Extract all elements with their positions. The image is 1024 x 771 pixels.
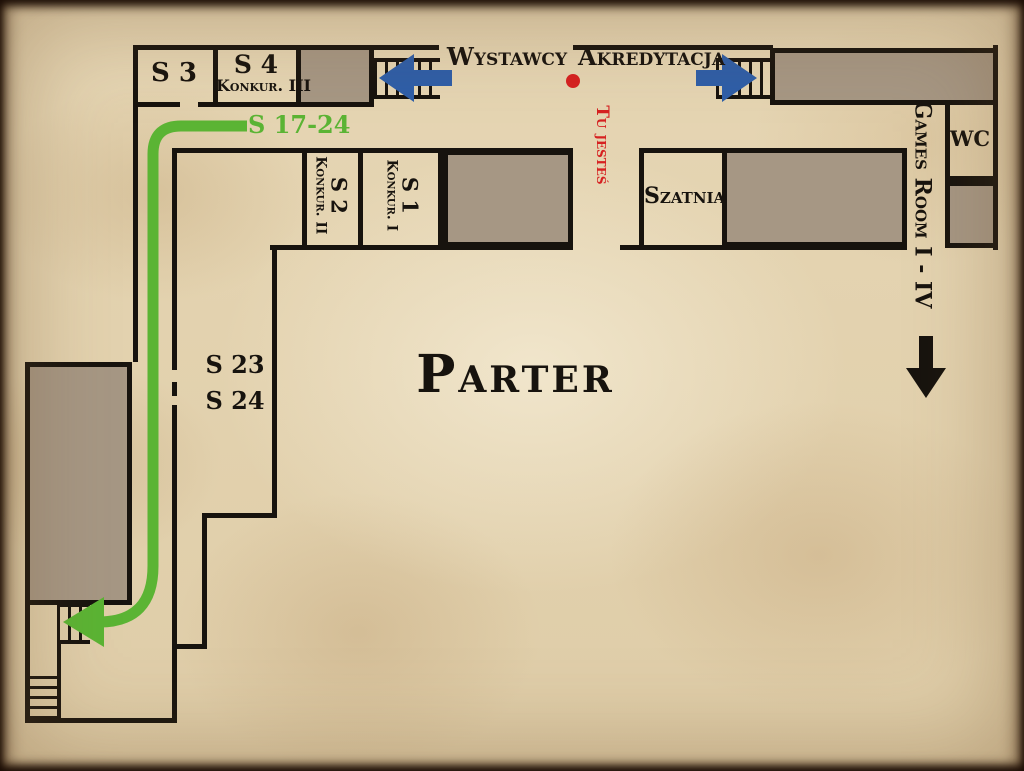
wall (133, 45, 439, 50)
shaded-room (945, 181, 998, 248)
stairs (57, 603, 90, 644)
route-label-s17-24: S 17-24 (248, 112, 368, 137)
room-label-s2-sub: Konkur. II (313, 145, 328, 245)
wall (639, 148, 907, 153)
wall (313, 102, 374, 107)
shaded-room (25, 362, 132, 605)
room-label-s1: S 1 Konkur. I (384, 145, 421, 245)
wall (172, 148, 573, 153)
stairs (374, 58, 440, 99)
wall (202, 513, 207, 649)
wall (172, 644, 206, 649)
shaded-room (770, 48, 998, 105)
you-are-here-label: Tu jesteś (592, 85, 610, 205)
wall (272, 250, 277, 517)
room-label-szatnia: Szatnia (644, 185, 722, 208)
floor-title: Parter (408, 348, 623, 403)
room-label-s23: S 23 (194, 352, 276, 377)
shaded-room (443, 150, 573, 247)
room-label-wc: WC (945, 128, 995, 150)
wall (270, 245, 573, 250)
you-are-here-dot (566, 74, 580, 88)
wall (945, 176, 998, 181)
floor-plan-canvas: S 3 S 4 Konkur. III Wystawcy Akredytacja… (0, 0, 1024, 771)
wall (133, 102, 138, 362)
annotation-akredytacja: Akredytacja (578, 44, 723, 69)
room-label-s4-sub: Konkur. III (216, 78, 296, 95)
wall (438, 148, 443, 250)
wall (302, 148, 307, 250)
room-label-s1-sub: Konkur. I (384, 145, 399, 245)
room-label-s24: S 24 (194, 388, 276, 413)
wall (358, 148, 363, 250)
room-label-s1-main: S 1 (397, 177, 422, 214)
stairs (29, 676, 57, 722)
wall (172, 405, 177, 723)
room-label-s2-main: S 2 (326, 177, 351, 214)
wall (133, 102, 180, 107)
wall (198, 102, 297, 107)
room-label-s4: S 4 Konkur. III (216, 52, 296, 95)
annotation-wystawcy: Wystawcy (437, 44, 577, 69)
room-label-s3: S 3 (138, 60, 210, 87)
wall (202, 513, 277, 518)
room-label-s2: S 2 Konkur. II (313, 145, 350, 245)
shaded-room (722, 148, 907, 247)
wall (620, 245, 907, 250)
wall (172, 148, 177, 370)
room-label-s4-main: S 4 (234, 50, 278, 79)
annotation-games-room: Games Room I - IV (910, 75, 933, 335)
games-room-arrow-icon (906, 336, 946, 398)
wall (57, 640, 61, 723)
wall (172, 382, 177, 396)
